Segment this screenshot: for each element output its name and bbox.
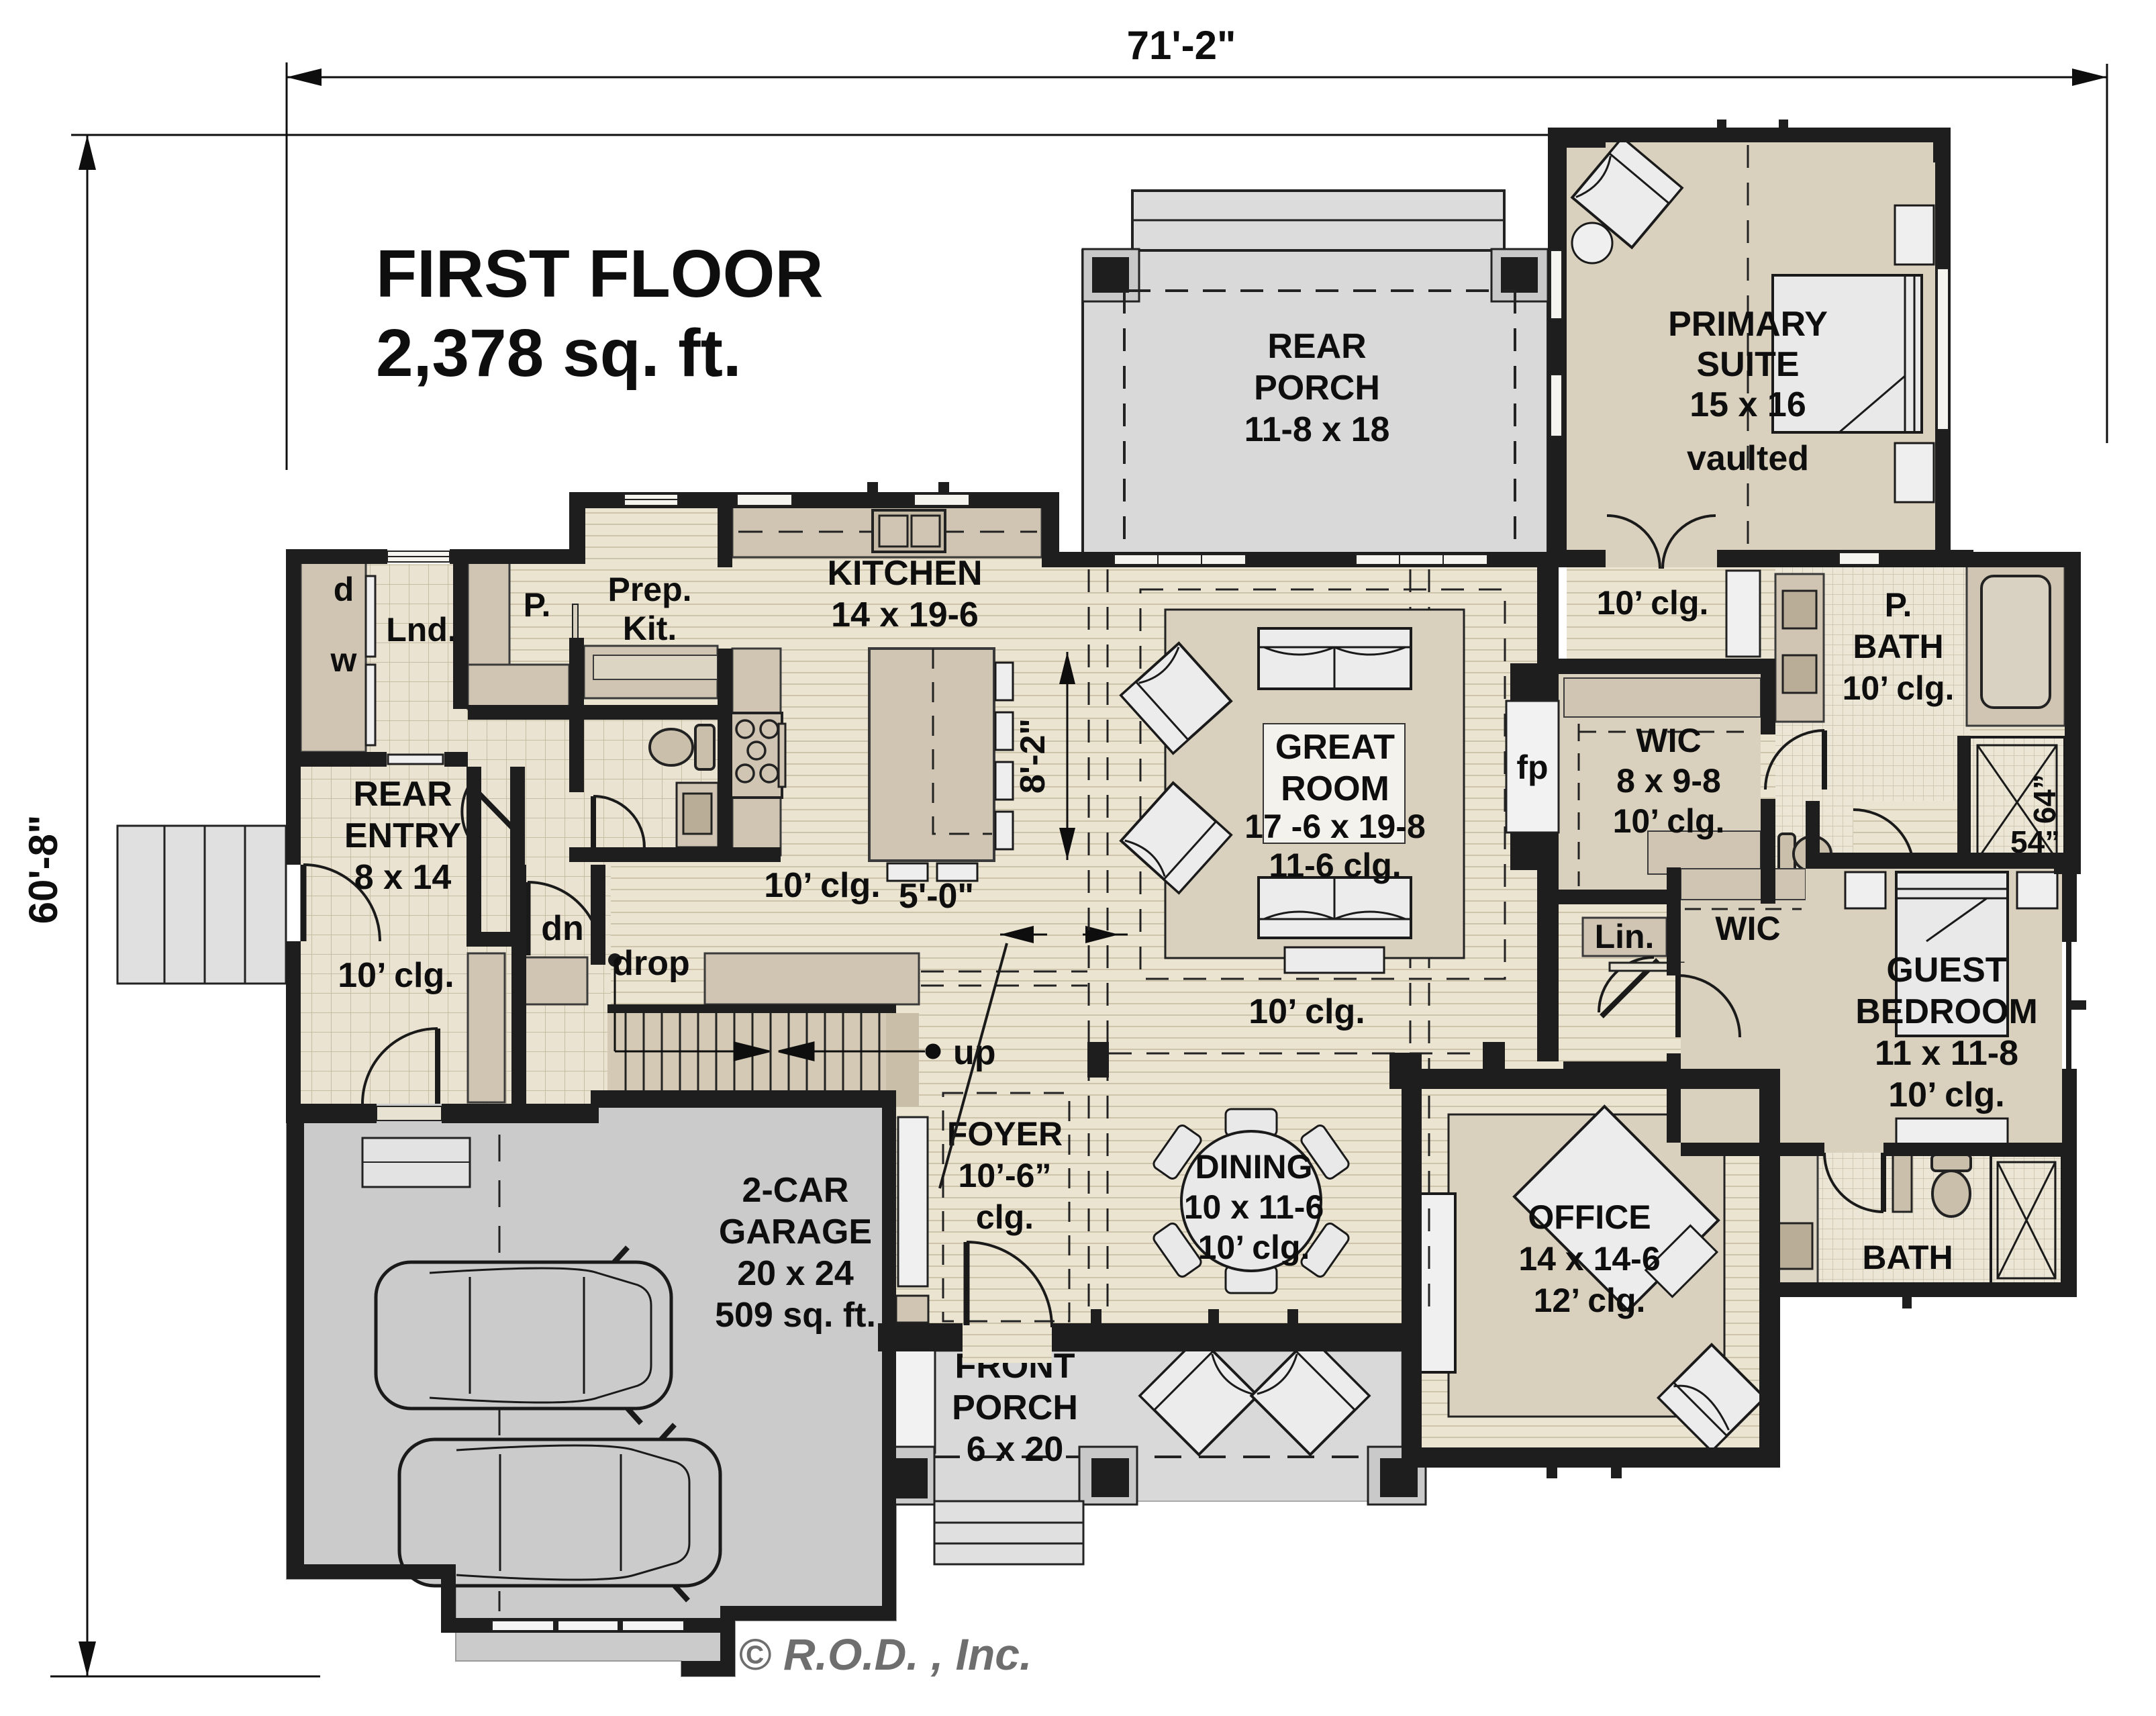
svg-text:FOYER: FOYER — [947, 1115, 1063, 1153]
svg-text:vaulted: vaulted — [1687, 439, 1809, 478]
svg-text:509 sq. ft.: 509 sq. ft. — [715, 1296, 876, 1335]
svg-text:10’ clg.: 10’ clg. — [338, 956, 454, 995]
svg-text:OFFICE: OFFICE — [1528, 1198, 1651, 1236]
svg-text:15 x 16: 15 x 16 — [1689, 385, 1806, 424]
svg-text:fp: fp — [1516, 749, 1548, 786]
svg-text:12’ clg.: 12’ clg. — [1534, 1282, 1646, 1319]
svg-text:60'-8": 60'-8" — [21, 815, 66, 924]
svg-text:Lin.: Lin. — [1595, 918, 1655, 955]
svg-text:10 x 11-6: 10 x 11-6 — [1184, 1188, 1324, 1226]
svg-text:WIC: WIC — [1636, 722, 1701, 759]
svg-text:WIC: WIC — [1715, 910, 1780, 947]
svg-text:20 x 24: 20 x 24 — [737, 1254, 854, 1293]
svg-text:11-6 clg.: 11-6 clg. — [1269, 847, 1401, 884]
svg-text:REAR: REAR — [353, 775, 452, 814]
svg-text:10’ clg.: 10’ clg. — [1248, 992, 1365, 1031]
svg-text:14 x 14-6: 14 x 14-6 — [1518, 1240, 1660, 1278]
svg-text:2-CAR: 2-CAR — [742, 1171, 849, 1210]
svg-text:Prep.: Prep. — [607, 571, 691, 608]
svg-text:10’-6”: 10’-6” — [959, 1157, 1052, 1194]
svg-text:BATH: BATH — [1853, 628, 1943, 665]
svg-text:11-8 x 18: 11-8 x 18 — [1244, 410, 1390, 449]
svg-text:KITCHEN: KITCHEN — [827, 554, 982, 593]
svg-text:PRIMARY: PRIMARY — [1668, 305, 1828, 344]
svg-text:© R.O.D. , Inc.: © R.O.D. , Inc. — [738, 1629, 1032, 1679]
svg-text:P.: P. — [1885, 586, 1912, 624]
svg-text:8'-2": 8'-2" — [1014, 718, 1052, 794]
svg-text:ROOM: ROOM — [1281, 769, 1389, 808]
svg-text:11 x 11-8: 11 x 11-8 — [1875, 1034, 2018, 1073]
svg-text:64”: 64” — [2027, 774, 2062, 824]
svg-text:10’ clg.: 10’ clg. — [1597, 584, 1709, 622]
svg-text:BEDROOM: BEDROOM — [1855, 992, 2038, 1031]
svg-text:10’ clg.: 10’ clg. — [1613, 802, 1725, 840]
svg-text:6 x 20: 6 x 20 — [967, 1430, 1064, 1469]
svg-text:10’ clg.: 10’ clg. — [1843, 669, 1955, 707]
svg-text:GUEST: GUEST — [1886, 951, 2006, 990]
svg-text:d: d — [334, 571, 354, 608]
svg-text:Lnd.: Lnd. — [386, 611, 457, 649]
svg-text:FIRST FLOOR: FIRST FLOOR — [376, 236, 824, 312]
svg-text:8 x 9-8: 8 x 9-8 — [1616, 762, 1721, 800]
svg-text:P.: P. — [524, 586, 551, 624]
svg-text:PORCH: PORCH — [952, 1388, 1078, 1427]
svg-text:14 x 19-6: 14 x 19-6 — [831, 595, 979, 634]
svg-text:5'-0": 5'-0" — [899, 877, 974, 916]
svg-text:SUITE: SUITE — [1696, 345, 1799, 384]
svg-text:Kit.: Kit. — [623, 610, 677, 647]
svg-text:w: w — [330, 641, 357, 679]
svg-text:17 -6 x 19-8: 17 -6 x 19-8 — [1244, 808, 1426, 845]
svg-text:2,378 sq. ft.: 2,378 sq. ft. — [376, 316, 742, 391]
svg-text:DINING: DINING — [1195, 1148, 1313, 1186]
svg-text:clg.: clg. — [976, 1198, 1034, 1236]
svg-text:BATH: BATH — [1862, 1239, 1953, 1276]
svg-text:71'-2": 71'-2" — [1127, 23, 1236, 68]
svg-text:drop: drop — [612, 944, 690, 983]
svg-text:10’ clg.: 10’ clg. — [764, 866, 880, 905]
svg-text:dn: dn — [541, 909, 584, 948]
svg-text:10’ clg.: 10’ clg. — [1888, 1076, 2004, 1114]
svg-text:GREAT: GREAT — [1275, 728, 1395, 767]
svg-text:8 x 14: 8 x 14 — [354, 858, 452, 897]
svg-text:GARAGE: GARAGE — [719, 1212, 872, 1251]
svg-text:PORCH: PORCH — [1254, 369, 1380, 408]
svg-text:REAR: REAR — [1267, 327, 1366, 366]
svg-text:ENTRY: ENTRY — [344, 816, 461, 855]
svg-text:10’ clg.: 10’ clg. — [1198, 1229, 1310, 1266]
